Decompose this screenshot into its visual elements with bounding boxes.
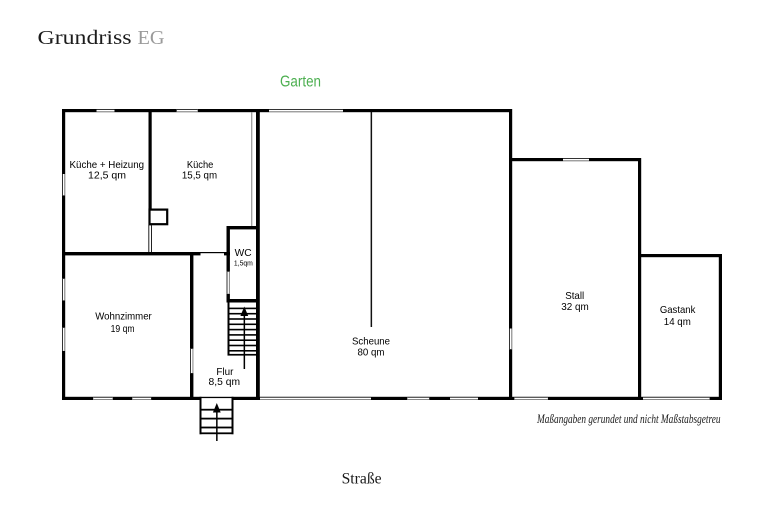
svg-text:Grundriss: Grundriss xyxy=(38,27,132,49)
svg-text:Garten: Garten xyxy=(280,73,321,90)
svg-text:EG: EG xyxy=(138,27,165,49)
svg-text:14 qm: 14 qm xyxy=(664,316,691,328)
svg-text:1,5qm: 1,5qm xyxy=(234,259,253,268)
svg-text:Wohnzimmer: Wohnzimmer xyxy=(95,311,152,323)
svg-text:15,5 qm: 15,5 qm xyxy=(182,169,217,181)
svg-text:Straße: Straße xyxy=(342,471,382,488)
svg-text:Stall: Stall xyxy=(565,290,584,302)
svg-text:19 qm: 19 qm xyxy=(111,323,135,335)
svg-text:Gastank: Gastank xyxy=(660,304,696,316)
svg-text:80 qm: 80 qm xyxy=(358,346,385,358)
svg-text:8,5 qm: 8,5 qm xyxy=(209,376,241,388)
svg-text:WC: WC xyxy=(235,248,252,259)
svg-text:32 qm: 32 qm xyxy=(561,301,589,313)
svg-text:12,5 qm: 12,5 qm xyxy=(88,169,126,181)
svg-text:Maßangaben gerundet und nicht: Maßangaben gerundet und nicht Maßstabsge… xyxy=(536,411,721,426)
